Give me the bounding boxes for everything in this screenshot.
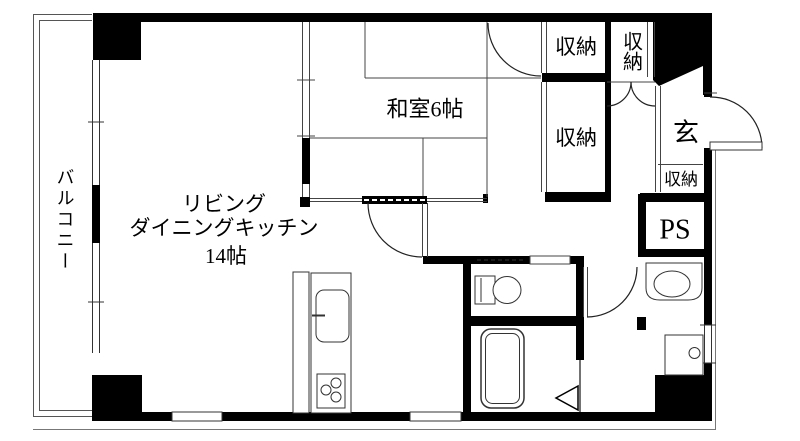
washbasin xyxy=(646,263,702,300)
washroom-door-arc xyxy=(587,267,637,317)
ldk-label-line3: 14帖 xyxy=(205,245,247,267)
entrance-closet-label: 収納 xyxy=(664,171,698,189)
ldk-door-arc xyxy=(368,203,422,257)
bathroom-folding-door xyxy=(556,386,578,410)
door-swings xyxy=(368,23,655,317)
floorplan: バルコニー リビング ダイニングキッチン 14帖 和室6帖 収納 収納 収納 玄… xyxy=(0,0,800,441)
japanese-room-door-arc xyxy=(488,23,541,76)
ldk-label-line2: ダイニングキッチン xyxy=(130,217,319,239)
toilet-fixture xyxy=(475,276,521,304)
japanese-room-label: 和室6帖 xyxy=(386,97,463,120)
entrance-door-leaf xyxy=(710,142,762,150)
pipe-space-label: PS xyxy=(659,215,690,244)
stove-burner xyxy=(331,392,341,402)
toilet-bowl xyxy=(493,277,521,304)
entrance-door-arc xyxy=(710,97,762,148)
closet-top-label: 収納 xyxy=(555,36,597,58)
stove-burner xyxy=(331,378,341,388)
entrance-label: 玄 xyxy=(673,119,699,146)
balcony-label: バルコニー xyxy=(55,168,74,273)
kitchen-partition xyxy=(293,272,309,413)
ldk-label-line1: リビング xyxy=(182,193,266,215)
laundry-pan xyxy=(665,335,703,375)
bathtub xyxy=(481,329,524,408)
closet-double-door-arc-right xyxy=(631,82,655,106)
toilet-tank xyxy=(475,276,495,304)
entrance-corner-wall xyxy=(653,13,712,95)
closet-middle-label: 収納 xyxy=(555,127,597,149)
entrance-door xyxy=(710,97,762,150)
closet-top-right-label: 収納 xyxy=(620,31,641,71)
kitchen-counter xyxy=(293,272,351,413)
stove-burner xyxy=(321,385,331,395)
toilet-door-opening xyxy=(530,256,570,264)
